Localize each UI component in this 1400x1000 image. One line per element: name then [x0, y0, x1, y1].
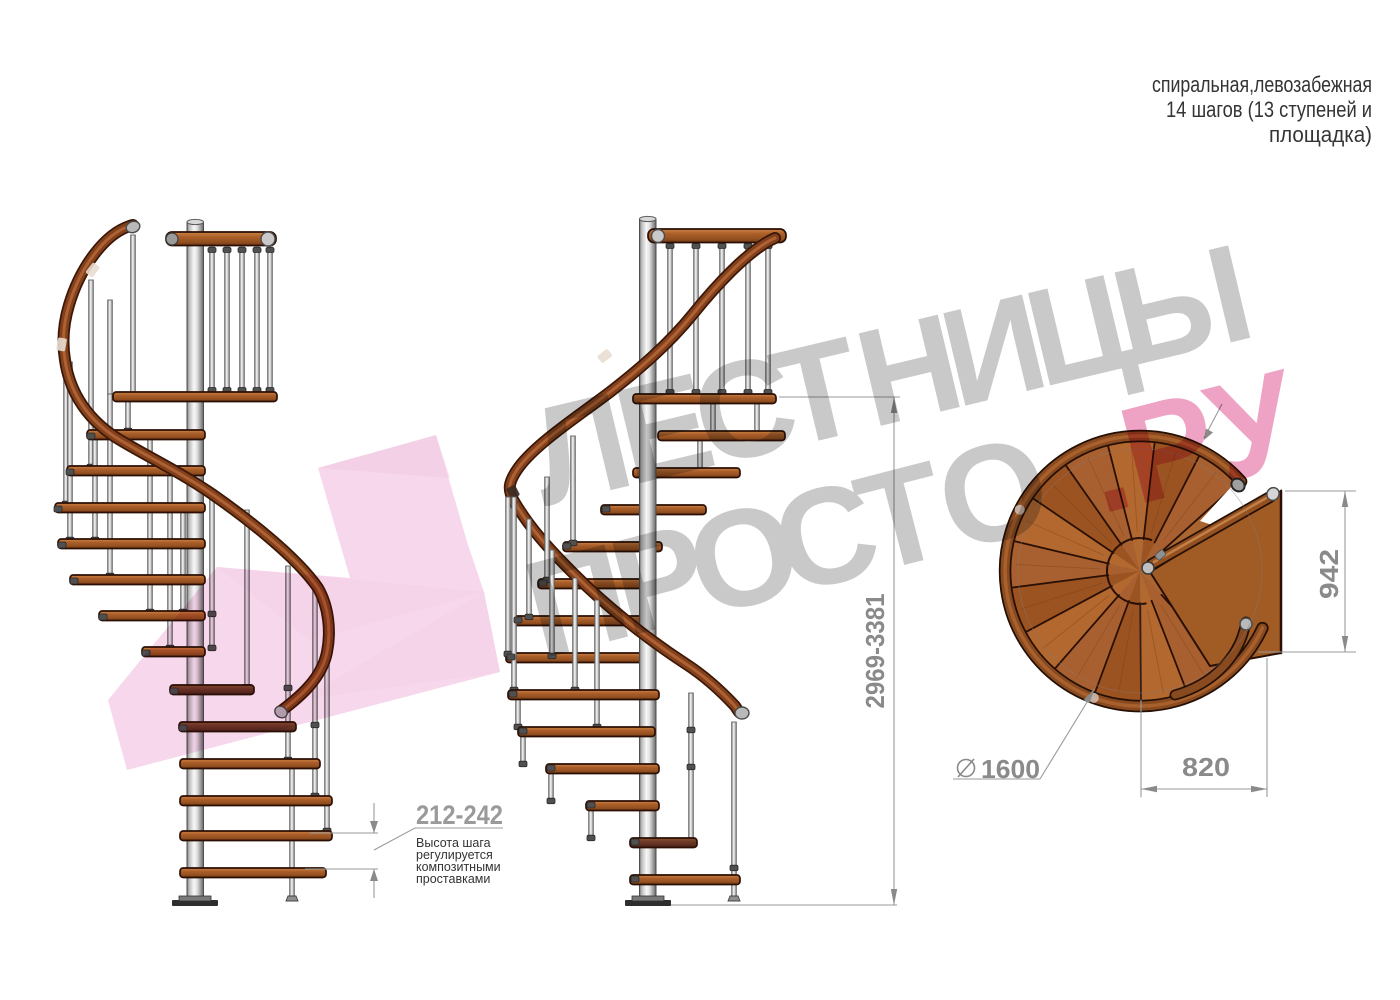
- svg-text:212-242: 212-242: [416, 800, 503, 830]
- svg-text:1600: 1600: [981, 754, 1040, 784]
- svg-text:942: 942: [1314, 549, 1344, 599]
- svg-text:спиральная,левозабежная: спиральная,левозабежная: [1152, 72, 1372, 97]
- svg-text:14 шагов (13 ступеней и: 14 шагов (13 ступеней и: [1166, 97, 1372, 122]
- svg-text:2969-3381: 2969-3381: [860, 594, 890, 709]
- svg-text:проставками: проставками: [416, 872, 490, 886]
- svg-text:площадка): площадка): [1269, 122, 1372, 147]
- svg-text:820: 820: [1182, 752, 1230, 782]
